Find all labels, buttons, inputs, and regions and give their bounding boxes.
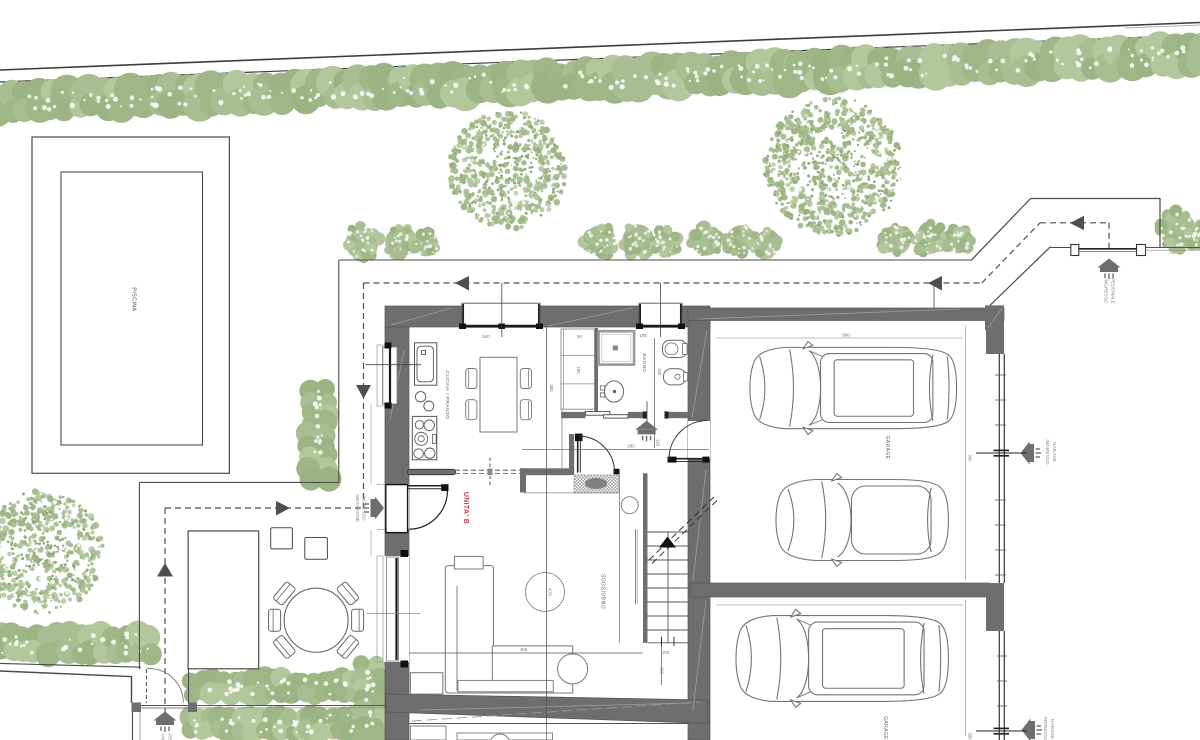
svg-text:100: 100 bbox=[662, 650, 670, 655]
svg-text:UNITA' B: UNITA' B bbox=[462, 492, 469, 524]
svg-text:INGRESSO: INGRESSO bbox=[160, 734, 166, 740]
svg-text:GARAGE: GARAGE bbox=[884, 436, 890, 460]
svg-text:PEDONALE: PEDONALE bbox=[1110, 278, 1116, 304]
svg-text:195: 195 bbox=[639, 333, 647, 338]
svg-text:180: 180 bbox=[657, 368, 662, 376]
svg-text:INGRESSO: INGRESSO bbox=[1103, 278, 1109, 304]
svg-text:50: 50 bbox=[577, 334, 582, 339]
svg-text:SOGGIORNO: SOGGIORNO bbox=[600, 574, 606, 609]
svg-text:110: 110 bbox=[656, 439, 661, 447]
svg-text:395: 395 bbox=[967, 455, 972, 463]
svg-text:BAGNO: BAGNO bbox=[641, 353, 647, 372]
svg-text:395: 395 bbox=[967, 733, 972, 740]
svg-text:GARAGE: GARAGE bbox=[1049, 719, 1055, 740]
svg-text:PISCINA: PISCINA bbox=[131, 287, 137, 311]
svg-text:990: 990 bbox=[842, 333, 850, 338]
svg-text:CUCINA / PRANZO: CUCINA / PRANZO bbox=[444, 371, 450, 420]
svg-text:GARAGE: GARAGE bbox=[882, 716, 888, 740]
svg-text:110: 110 bbox=[660, 667, 665, 675]
svg-text:INGRESSO: INGRESSO bbox=[361, 495, 367, 521]
svg-text:INGRESSO: INGRESSO bbox=[1042, 716, 1048, 740]
svg-text:470: 470 bbox=[548, 588, 553, 596]
svg-text:280: 280 bbox=[627, 444, 635, 449]
svg-text:GARAGE: GARAGE bbox=[1051, 442, 1057, 463]
svg-text:180: 180 bbox=[576, 366, 581, 374]
svg-text:540: 540 bbox=[482, 334, 490, 339]
svg-text:INGRESSO: INGRESSO bbox=[1044, 439, 1050, 465]
svg-text:PEDONALE: PEDONALE bbox=[167, 734, 173, 740]
svg-text:300: 300 bbox=[549, 384, 554, 392]
svg-text:ABITAZIONE: ABITAZIONE bbox=[354, 494, 360, 522]
svg-text:495: 495 bbox=[520, 647, 528, 652]
